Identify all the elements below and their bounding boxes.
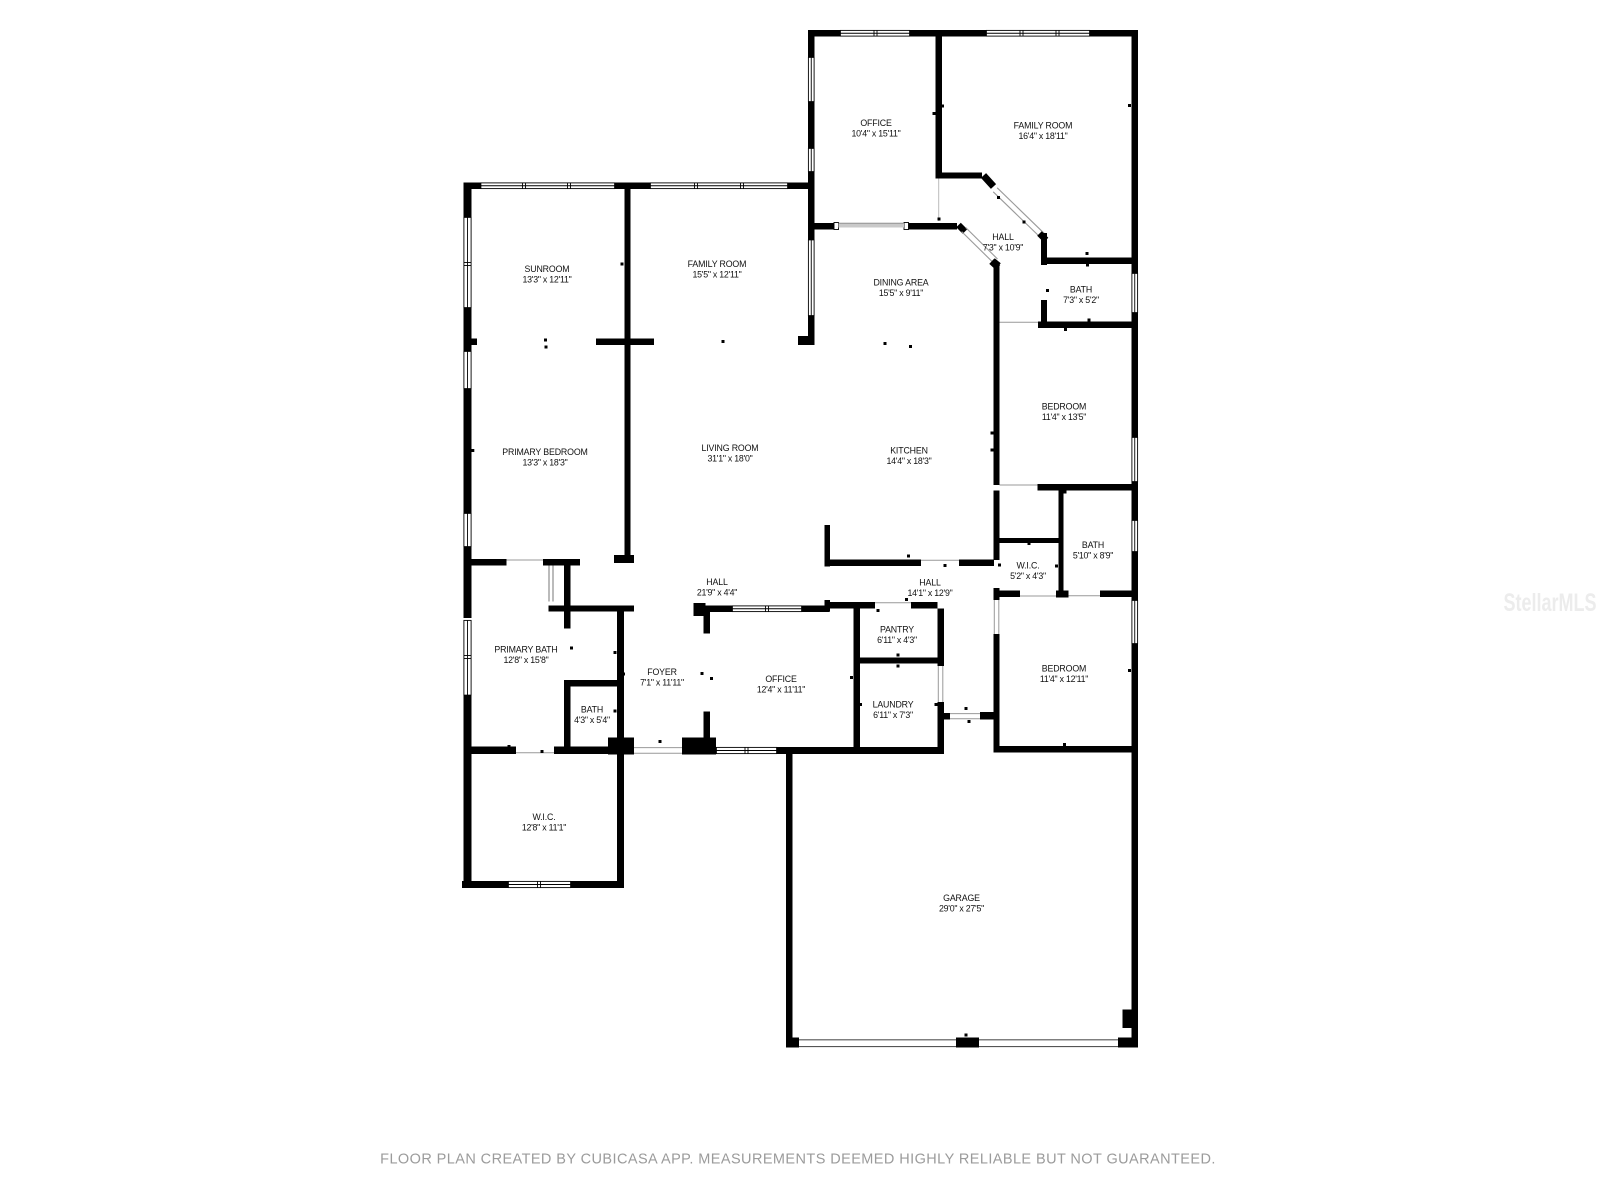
svg-text:BEDROOM: BEDROOM (1042, 664, 1086, 674)
svg-text:4'3" x 5'4": 4'3" x 5'4" (574, 715, 610, 725)
svg-text:5'10" x 8'9": 5'10" x 8'9" (1073, 550, 1113, 560)
svg-text:OFFICE: OFFICE (860, 118, 892, 128)
svg-text:W.I.C.: W.I.C. (532, 812, 555, 822)
svg-text:PANTRY: PANTRY (880, 625, 914, 635)
svg-text:StellarMLS: StellarMLS (1504, 588, 1597, 617)
svg-text:PRIMARY BEDROOM: PRIMARY BEDROOM (502, 447, 587, 457)
svg-text:OFFICE: OFFICE (765, 674, 797, 684)
svg-text:6'11" x 7'3": 6'11" x 7'3" (873, 710, 913, 720)
svg-text:SUNROOM: SUNROOM (525, 264, 570, 274)
svg-text:10'4" x 15'11": 10'4" x 15'11" (852, 128, 901, 138)
svg-text:15'5" x 9'11": 15'5" x 9'11" (879, 288, 923, 298)
svg-text:BATH: BATH (581, 704, 603, 714)
svg-text:BATH: BATH (1082, 540, 1104, 550)
svg-text:14'1" x 12'9": 14'1" x 12'9" (908, 588, 953, 598)
svg-text:11'4" x 13'5": 11'4" x 13'5" (1042, 412, 1086, 422)
svg-text:12'4" x 11'11": 12'4" x 11'11" (757, 684, 805, 694)
svg-text:7'1" x 11'11": 7'1" x 11'11" (640, 677, 684, 687)
svg-text:DINING AREA: DINING AREA (873, 278, 928, 288)
svg-text:HALL: HALL (706, 577, 728, 587)
svg-text:12'8" x 11'1": 12'8" x 11'1" (522, 822, 566, 832)
svg-text:6'11" x 4'3": 6'11" x 4'3" (877, 635, 917, 645)
svg-text:7'3" x 5'2": 7'3" x 5'2" (1063, 295, 1099, 305)
svg-text:21'9" x 4'4": 21'9" x 4'4" (697, 587, 737, 597)
svg-text:HALL: HALL (992, 232, 1014, 242)
svg-text:BEDROOM: BEDROOM (1042, 402, 1086, 412)
svg-text:16'4" x 18'11": 16'4" x 18'11" (1019, 131, 1068, 141)
svg-text:W.I.C.: W.I.C. (1016, 561, 1039, 571)
svg-text:12'8" x 15'8": 12'8" x 15'8" (504, 655, 549, 665)
svg-text:FLOOR PLAN CREATED BY CUBICASA: FLOOR PLAN CREATED BY CUBICASA APP. MEAS… (380, 1152, 1216, 1168)
svg-text:PRIMARY BATH: PRIMARY BATH (494, 644, 557, 654)
svg-text:GARAGE: GARAGE (943, 893, 980, 903)
svg-text:13'3" x 12'11": 13'3" x 12'11" (523, 274, 572, 284)
svg-text:14'4" x 18'3": 14'4" x 18'3" (887, 456, 932, 466)
svg-text:BATH: BATH (1070, 285, 1092, 295)
svg-text:5'2" x 4'3": 5'2" x 4'3" (1010, 571, 1046, 581)
svg-text:LAUNDRY: LAUNDRY (873, 700, 914, 710)
svg-text:LIVING ROOM: LIVING ROOM (701, 443, 758, 453)
svg-text:FAMILY ROOM: FAMILY ROOM (688, 259, 747, 269)
svg-text:13'3" x 18'3": 13'3" x 18'3" (523, 457, 568, 467)
svg-text:FAMILY ROOM: FAMILY ROOM (1014, 121, 1073, 131)
svg-text:15'5" x 12'11": 15'5" x 12'11" (693, 270, 742, 280)
svg-text:29'0" x 27'5": 29'0" x 27'5" (939, 903, 984, 913)
svg-text:KITCHEN: KITCHEN (890, 446, 928, 456)
svg-text:7'3" x 10'9": 7'3" x 10'9" (983, 242, 1023, 252)
svg-text:31'1" x 18'0": 31'1" x 18'0" (708, 453, 753, 463)
svg-text:HALL: HALL (919, 577, 941, 587)
svg-text:FOYER: FOYER (647, 667, 677, 677)
svg-text:11'4" x 12'11": 11'4" x 12'11" (1040, 674, 1088, 684)
